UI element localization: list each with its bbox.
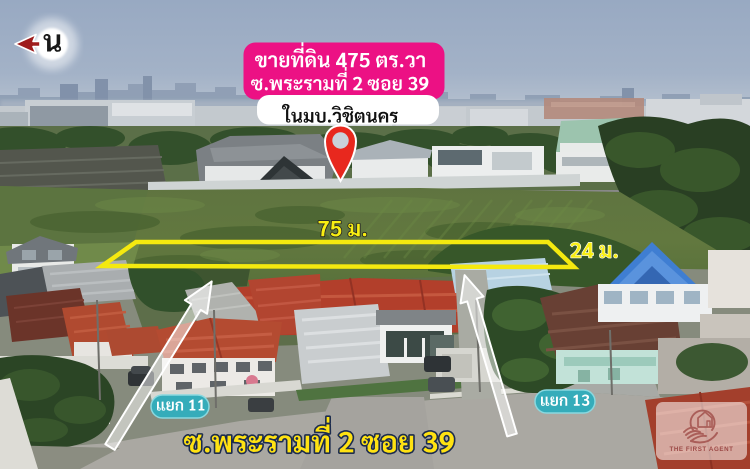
svg-text:THE FIRST AGENT: THE FIRST AGENT — [669, 446, 733, 453]
